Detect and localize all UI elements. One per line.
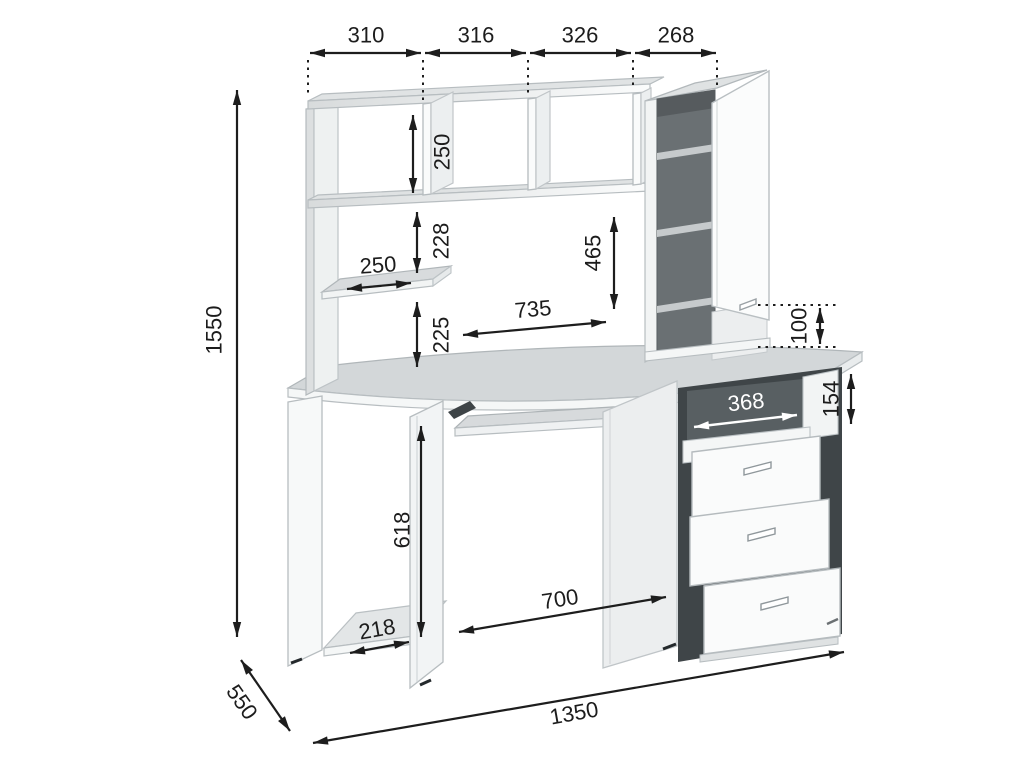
- cabinet-left-edge: [645, 99, 657, 362]
- dim-label-618: 618: [390, 512, 415, 549]
- dim-label-250h: 250: [359, 251, 397, 279]
- dim-label-735: 735: [514, 295, 553, 323]
- right-partition-panel: [603, 381, 677, 668]
- dim-line-1350: [313, 652, 844, 743]
- cabinet-door: [712, 71, 769, 320]
- hutch-left-panel-front-edge: [306, 108, 314, 395]
- dim-label-326: 326: [562, 23, 599, 48]
- dim-label-250v: 250: [430, 134, 455, 171]
- dim-label-228: 228: [429, 223, 454, 260]
- diagram-page: 310 316 326 268 1550 250 228 250 225 465…: [0, 0, 1024, 768]
- dim-label-700: 700: [540, 584, 580, 614]
- dim-label-1550: 1550: [202, 306, 227, 355]
- dim-label-310: 310: [348, 23, 385, 48]
- hutch-left-panel-side: [314, 97, 338, 391]
- dim-label-100: 100: [787, 308, 812, 345]
- dim-line-735: [463, 322, 606, 335]
- hutch-divider-2-side: [536, 91, 550, 189]
- dim-label-368: 368: [726, 388, 765, 417]
- furniture-dimension-diagram: 310 316 326 268 1550 250 228 250 225 465…: [0, 0, 1024, 768]
- dim-label-550: 550: [221, 680, 263, 724]
- hutch-divider-2-front-edge: [528, 98, 536, 190]
- dim-label-316: 316: [458, 23, 495, 48]
- left-partition-panel: [410, 401, 443, 688]
- desk-left-panel: [288, 396, 322, 666]
- hutch-divider-3-front-edge: [633, 93, 641, 185]
- dim-label-154: 154: [819, 381, 844, 418]
- dim-label-225: 225: [429, 317, 454, 354]
- dim-label-268: 268: [658, 23, 695, 48]
- dim-label-465: 465: [581, 235, 606, 272]
- floor-mark-left-partition: [420, 680, 431, 685]
